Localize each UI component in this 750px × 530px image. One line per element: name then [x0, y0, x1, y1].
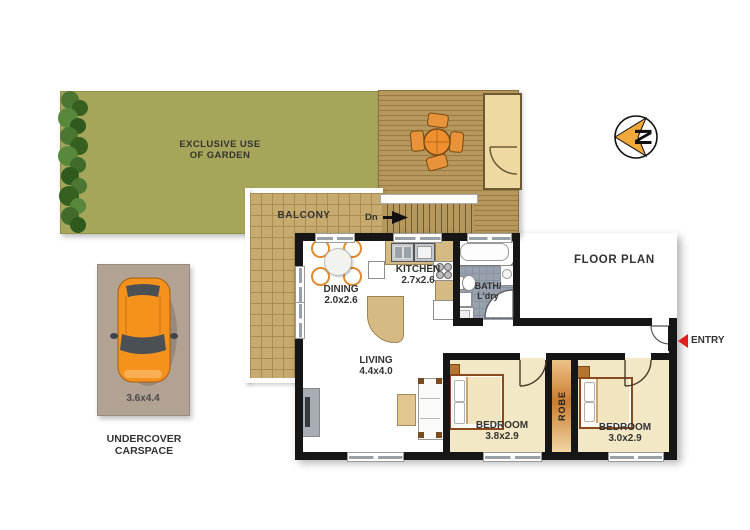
window-bath: [467, 233, 512, 243]
stair-landing: [483, 93, 522, 190]
compass-north-letter: N: [631, 128, 658, 145]
wall-bedrooms-top-a: [443, 353, 520, 360]
pillow: [584, 402, 595, 422]
wall-living-bed1: [443, 353, 450, 459]
page-title: FLOOR PLAN: [574, 254, 655, 266]
window-dining: [315, 233, 355, 243]
robe-label: ROBE: [557, 391, 567, 421]
balcony-door-upper: [295, 266, 305, 304]
sofa-post: [436, 378, 442, 384]
bathtub-basin: [460, 243, 509, 261]
stairs-down: [382, 202, 474, 233]
entry-arrow-icon: [678, 334, 688, 348]
balcony-door-lower: [295, 302, 305, 339]
kitchen-cabinet: [433, 300, 455, 320]
north-arrow: [615, 118, 646, 156]
bedroom1-label: BEDROOM 3.8x2.9: [458, 420, 546, 442]
wall-hall-top: [513, 318, 652, 326]
sink-bowl-left: [394, 246, 403, 259]
balcony-label: BALCONY: [258, 210, 350, 221]
bed1-blanket: [466, 377, 501, 424]
sofa-seam: [420, 398, 440, 399]
living-label: LIVING 4.4x4.0: [340, 355, 412, 377]
sofa-post: [418, 432, 424, 438]
oven-door: [417, 246, 432, 259]
tv-screen: [305, 397, 310, 427]
wall-bedrooms-top-b: [546, 353, 625, 360]
garden-label: EXCLUSIVE USE OF GARDEN: [150, 139, 290, 161]
wall-bath-left: [453, 233, 460, 326]
dn-label: Dn: [365, 212, 378, 223]
window-kitchen: [393, 233, 442, 243]
floor-plan-canvas: ROBE: [0, 0, 750, 530]
window-bedroom2: [608, 452, 664, 462]
window-living: [347, 452, 404, 462]
sink-bowl-right: [403, 246, 412, 259]
wall-bedrooms-top-c: [651, 353, 677, 360]
sofa-post: [418, 378, 424, 384]
pillow: [584, 382, 595, 402]
carspace-dims: 3.6x4.4: [111, 393, 175, 404]
dining-table-icon: [324, 248, 352, 276]
kitchen-label: KITCHEN 2.7x2.6: [383, 264, 453, 286]
robe: ROBE: [552, 360, 571, 452]
wall-robe-bed2: [571, 360, 578, 459]
carspace-label: UNDERCOVER CARSPACE: [93, 433, 195, 457]
pillow: [454, 380, 465, 402]
dining-label: DINING 2.0x2.6: [305, 284, 377, 306]
wall-right: [669, 318, 677, 459]
compass-icon: N: [615, 116, 658, 158]
entry-label: ENTRY: [691, 335, 725, 346]
bed2-blanket: [596, 379, 629, 423]
stair-rail: [380, 194, 478, 204]
wall-bath-bottom: [453, 318, 483, 326]
basin: [502, 269, 512, 279]
wall-bath-right: [513, 233, 520, 326]
bath-label: BATH/ L'dry: [463, 282, 513, 301]
coffee-table-icon: [397, 394, 416, 426]
sofa-seam: [420, 418, 440, 419]
bedroom2-label: BEDROOM 3.0x2.9: [581, 422, 669, 444]
wall-bed1-robe: [545, 360, 552, 459]
sofa-post: [436, 432, 442, 438]
window-bedroom1: [483, 452, 542, 462]
sofa-icon: [418, 378, 444, 440]
